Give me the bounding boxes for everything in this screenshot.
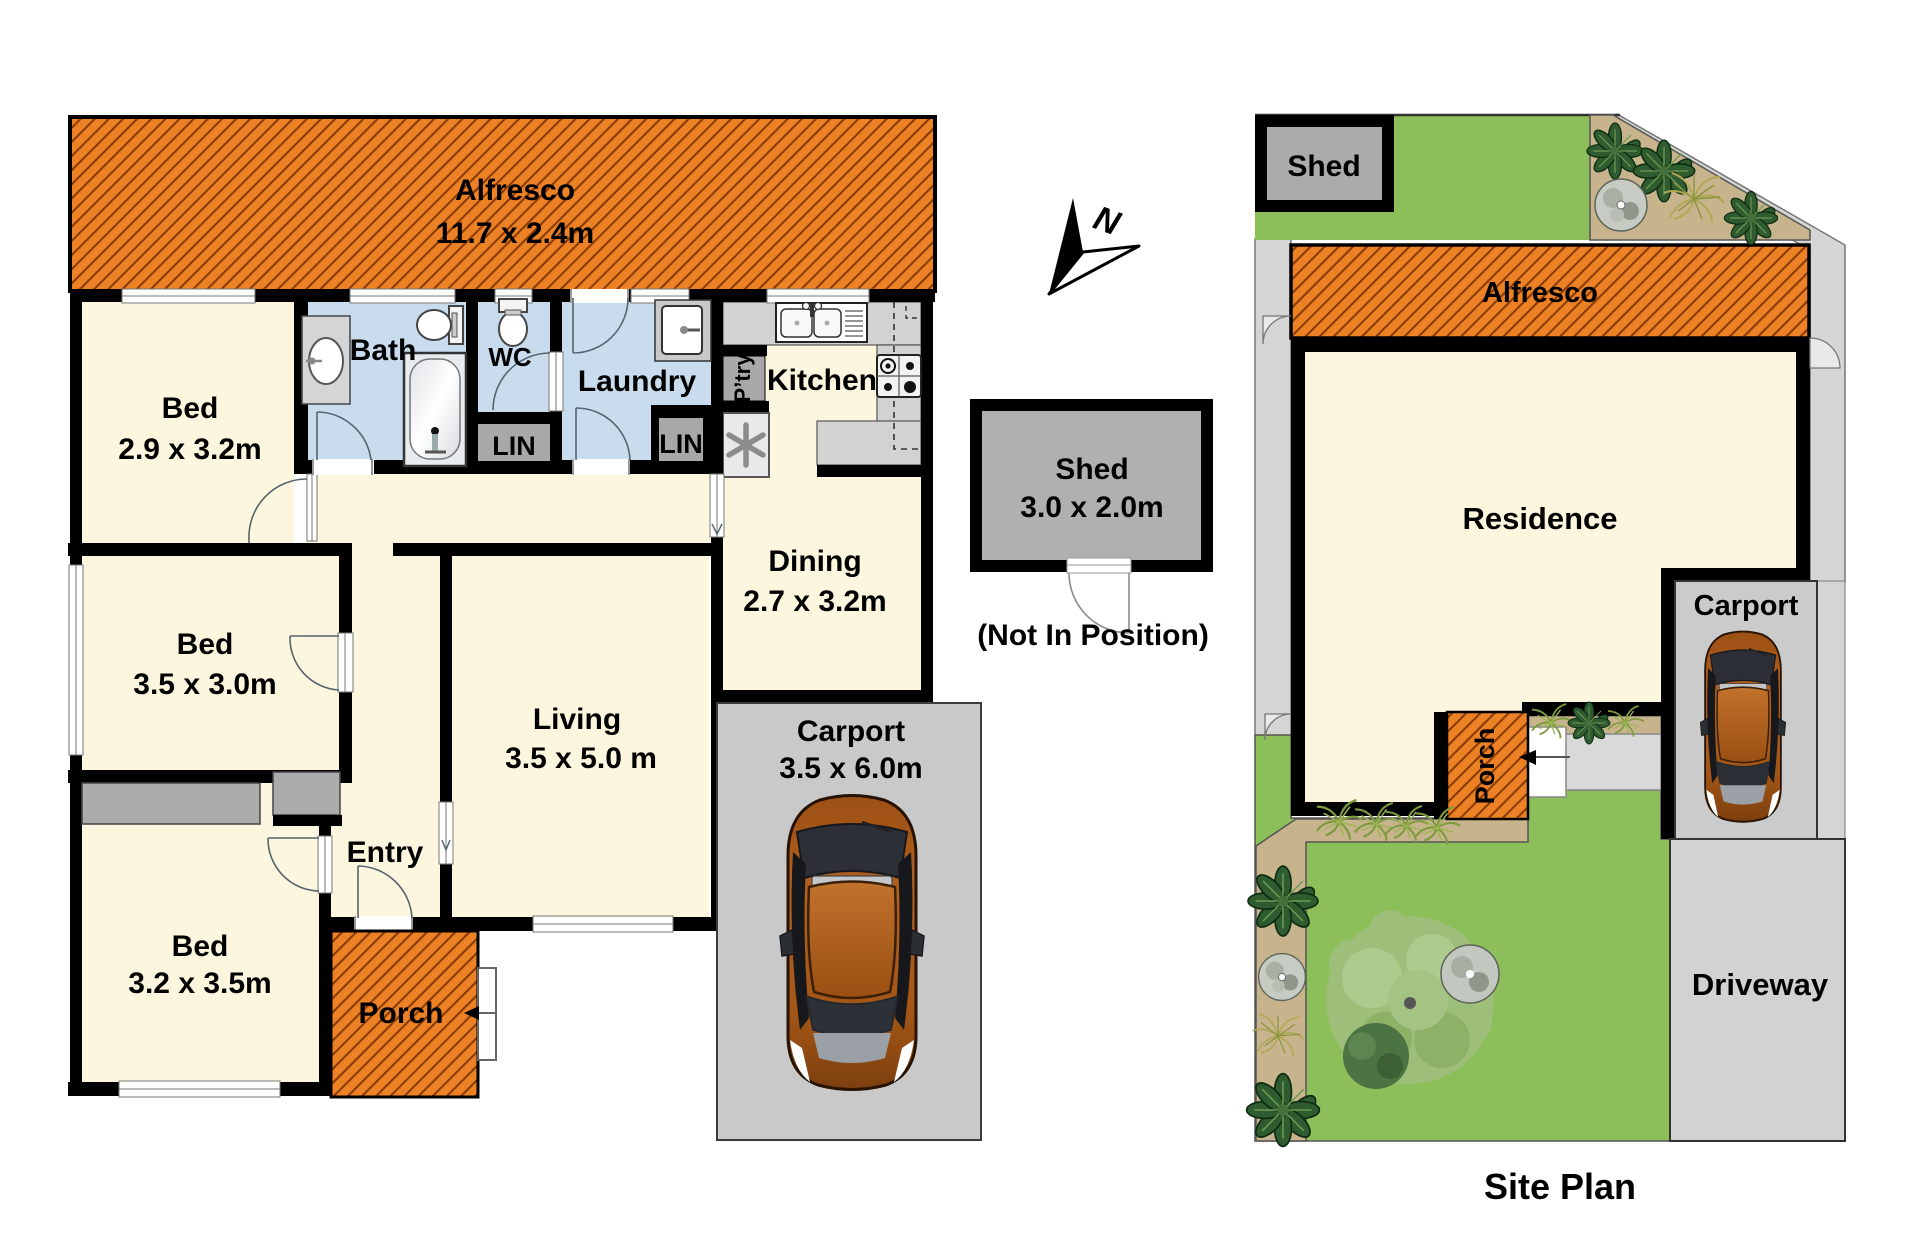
svg-text:3.2 x 3.5m: 3.2 x 3.5m <box>128 967 271 1000</box>
svg-text:Dining: Dining <box>768 545 861 578</box>
svg-text:P’try: P’try <box>730 353 755 403</box>
svg-text:Residence: Residence <box>1462 501 1617 536</box>
svg-text:3.5 x 5.0 m: 3.5 x 5.0 m <box>505 742 657 775</box>
svg-text:Site Plan: Site Plan <box>1484 1166 1636 1207</box>
svg-text:3.5 x 6.0m: 3.5 x 6.0m <box>779 752 922 785</box>
svg-text:Laundry: Laundry <box>578 365 697 398</box>
svg-text:Shed: Shed <box>1287 150 1360 183</box>
svg-text:(Not In Position): (Not In Position) <box>977 619 1209 652</box>
svg-text:Driveway: Driveway <box>1692 967 1829 1002</box>
svg-text:Bath: Bath <box>350 334 417 367</box>
svg-text:LIN: LIN <box>659 429 703 459</box>
svg-text:Kitchen: Kitchen <box>767 364 877 397</box>
svg-text:Porch: Porch <box>358 997 443 1030</box>
svg-text:Alfresco: Alfresco <box>1482 277 1598 309</box>
svg-text:2.9 x 3.2m: 2.9 x 3.2m <box>118 433 261 466</box>
svg-text:WC: WC <box>488 342 532 372</box>
svg-text:Entry: Entry <box>347 836 424 869</box>
svg-text:Bed: Bed <box>177 628 234 661</box>
svg-text:Porch: Porch <box>1470 728 1500 805</box>
svg-text:Carport: Carport <box>1694 590 1799 622</box>
svg-text:3.0 x 2.0m: 3.0 x 2.0m <box>1020 491 1163 524</box>
svg-text:Alfresco: Alfresco <box>455 174 575 207</box>
svg-text:Living: Living <box>533 703 621 736</box>
svg-text:Shed: Shed <box>1055 453 1128 486</box>
svg-text:Bed: Bed <box>162 392 219 425</box>
svg-text:Bed: Bed <box>172 930 229 963</box>
svg-text:Carport: Carport <box>797 715 905 748</box>
svg-text:3.5 x 3.0m: 3.5 x 3.0m <box>133 668 276 701</box>
svg-text:LIN: LIN <box>492 431 536 461</box>
svg-text:2.7 x 3.2m: 2.7 x 3.2m <box>743 585 886 618</box>
svg-text:11.7 x 2.4m: 11.7 x 2.4m <box>436 217 594 250</box>
